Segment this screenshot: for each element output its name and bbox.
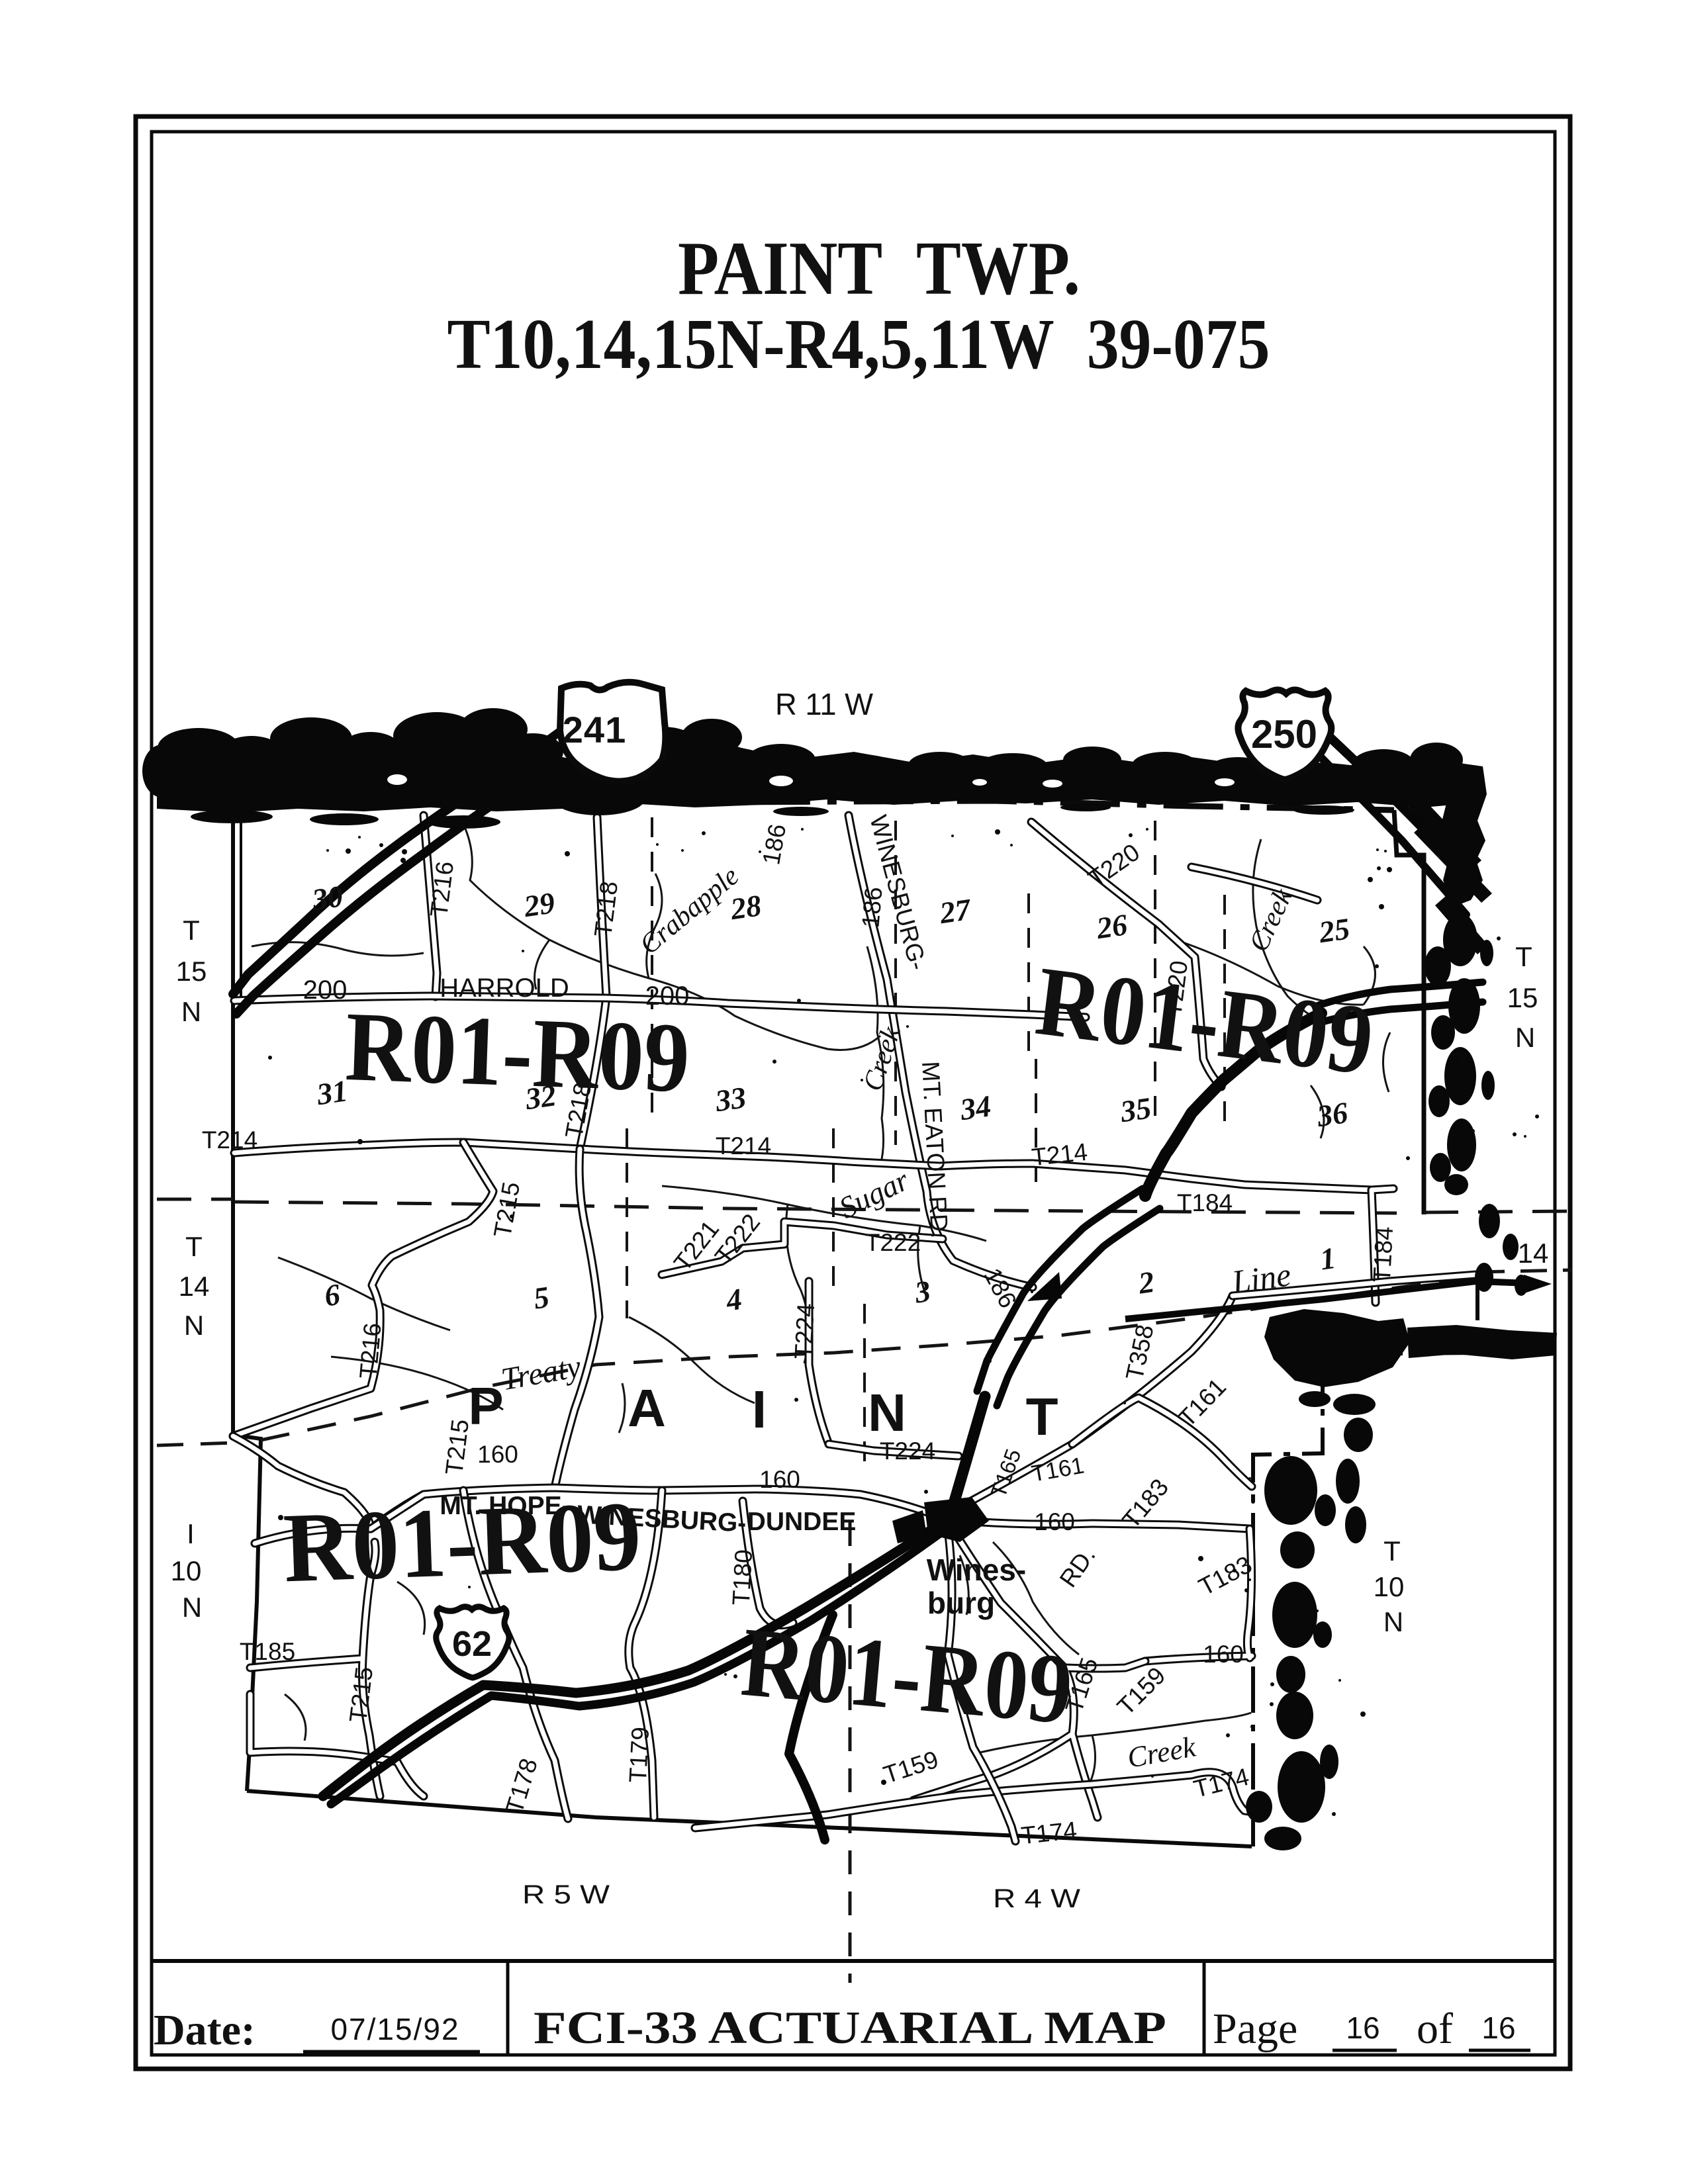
svg-text:burg: burg	[927, 1586, 995, 1620]
svg-text:T179: T179	[624, 1726, 654, 1783]
svg-text:34: 34	[958, 1089, 994, 1126]
svg-text:A: A	[628, 1379, 666, 1437]
svg-text:15: 15	[1507, 982, 1538, 1013]
svg-text:N: N	[1383, 1606, 1403, 1637]
svg-text:P: P	[468, 1377, 503, 1435]
svg-text:Date:: Date:	[154, 2006, 256, 2054]
svg-text:Page: Page	[1213, 2005, 1297, 2053]
svg-text:241: 241	[563, 709, 626, 751]
svg-text:30: 30	[310, 879, 346, 917]
svg-text:T214: T214	[1031, 1138, 1089, 1171]
svg-text:PAINT TWP.: PAINT TWP.	[678, 226, 1080, 311]
svg-text:T185: T185	[240, 1638, 295, 1665]
svg-text:T: T	[183, 915, 200, 946]
svg-text:R 5 W: R 5 W	[522, 1880, 610, 1909]
svg-text:T214: T214	[716, 1132, 771, 1160]
svg-text:R 4 W: R 4 W	[993, 1884, 1080, 1913]
svg-text:25: 25	[1317, 911, 1352, 949]
svg-text:200: 200	[303, 976, 348, 1005]
svg-text:T222: T222	[865, 1229, 921, 1256]
svg-text:10: 10	[171, 1555, 202, 1586]
svg-text:160: 160	[1203, 1641, 1244, 1668]
svg-text:27: 27	[937, 892, 974, 930]
svg-text:T174: T174	[1020, 1817, 1078, 1850]
svg-text:T: T	[1515, 941, 1532, 972]
svg-text:26: 26	[1094, 907, 1130, 945]
svg-text:R01-R09: R01-R09	[344, 991, 691, 1113]
svg-text:T184: T184	[1368, 1226, 1398, 1283]
svg-text:62: 62	[452, 1624, 492, 1664]
svg-text:T: T	[1026, 1387, 1058, 1446]
svg-text:R01-R09: R01-R09	[282, 1481, 643, 1604]
svg-text:T216: T216	[354, 1322, 386, 1380]
svg-text:250: 250	[1251, 712, 1317, 756]
svg-text:16: 16	[1346, 2011, 1380, 2045]
svg-text:T: T	[1383, 1535, 1401, 1567]
svg-text:N: N	[181, 996, 201, 1027]
svg-text:T: T	[185, 1231, 203, 1262]
svg-text:FCI-33 ACTUARIAL MAP: FCI-33 ACTUARIAL MAP	[534, 2003, 1166, 2054]
svg-text:N: N	[184, 1310, 204, 1341]
svg-text:160: 160	[759, 1466, 800, 1493]
svg-text:T224: T224	[790, 1302, 819, 1359]
svg-text:186: 186	[857, 886, 887, 929]
svg-text:07/15/92: 07/15/92	[330, 2012, 459, 2046]
svg-text:R 11 W: R 11 W	[775, 687, 874, 721]
svg-text:T184: T184	[1177, 1189, 1233, 1216]
svg-text:of: of	[1417, 2005, 1453, 2053]
svg-text:14: 14	[179, 1271, 210, 1302]
svg-text:160: 160	[1034, 1508, 1075, 1535]
svg-text:33: 33	[713, 1080, 749, 1118]
svg-text:36: 36	[1315, 1095, 1350, 1133]
svg-text:N: N	[182, 1592, 202, 1623]
svg-text:Wines-: Wines-	[927, 1553, 1026, 1587]
svg-text:N: N	[1515, 1022, 1535, 1053]
svg-text:T214: T214	[202, 1126, 257, 1154]
svg-text:14: 14	[1518, 1238, 1549, 1269]
svg-text:T10,14,15N-R4,5,11W 39-075: T10,14,15N-R4,5,11W 39-075	[447, 305, 1270, 384]
svg-text:15: 15	[176, 956, 207, 987]
svg-text:10: 10	[1374, 1571, 1405, 1602]
svg-text:29: 29	[522, 886, 557, 923]
svg-text:35: 35	[1118, 1091, 1154, 1128]
svg-text:16: 16	[1481, 2011, 1515, 2045]
svg-text:N: N	[868, 1383, 906, 1442]
svg-text:I: I	[187, 1518, 195, 1549]
svg-text:T180: T180	[727, 1549, 757, 1606]
svg-text:I: I	[752, 1380, 767, 1439]
svg-text:28: 28	[728, 888, 764, 926]
svg-text:DUNDEE: DUNDEE	[747, 1508, 857, 1536]
svg-text:160: 160	[477, 1441, 518, 1468]
